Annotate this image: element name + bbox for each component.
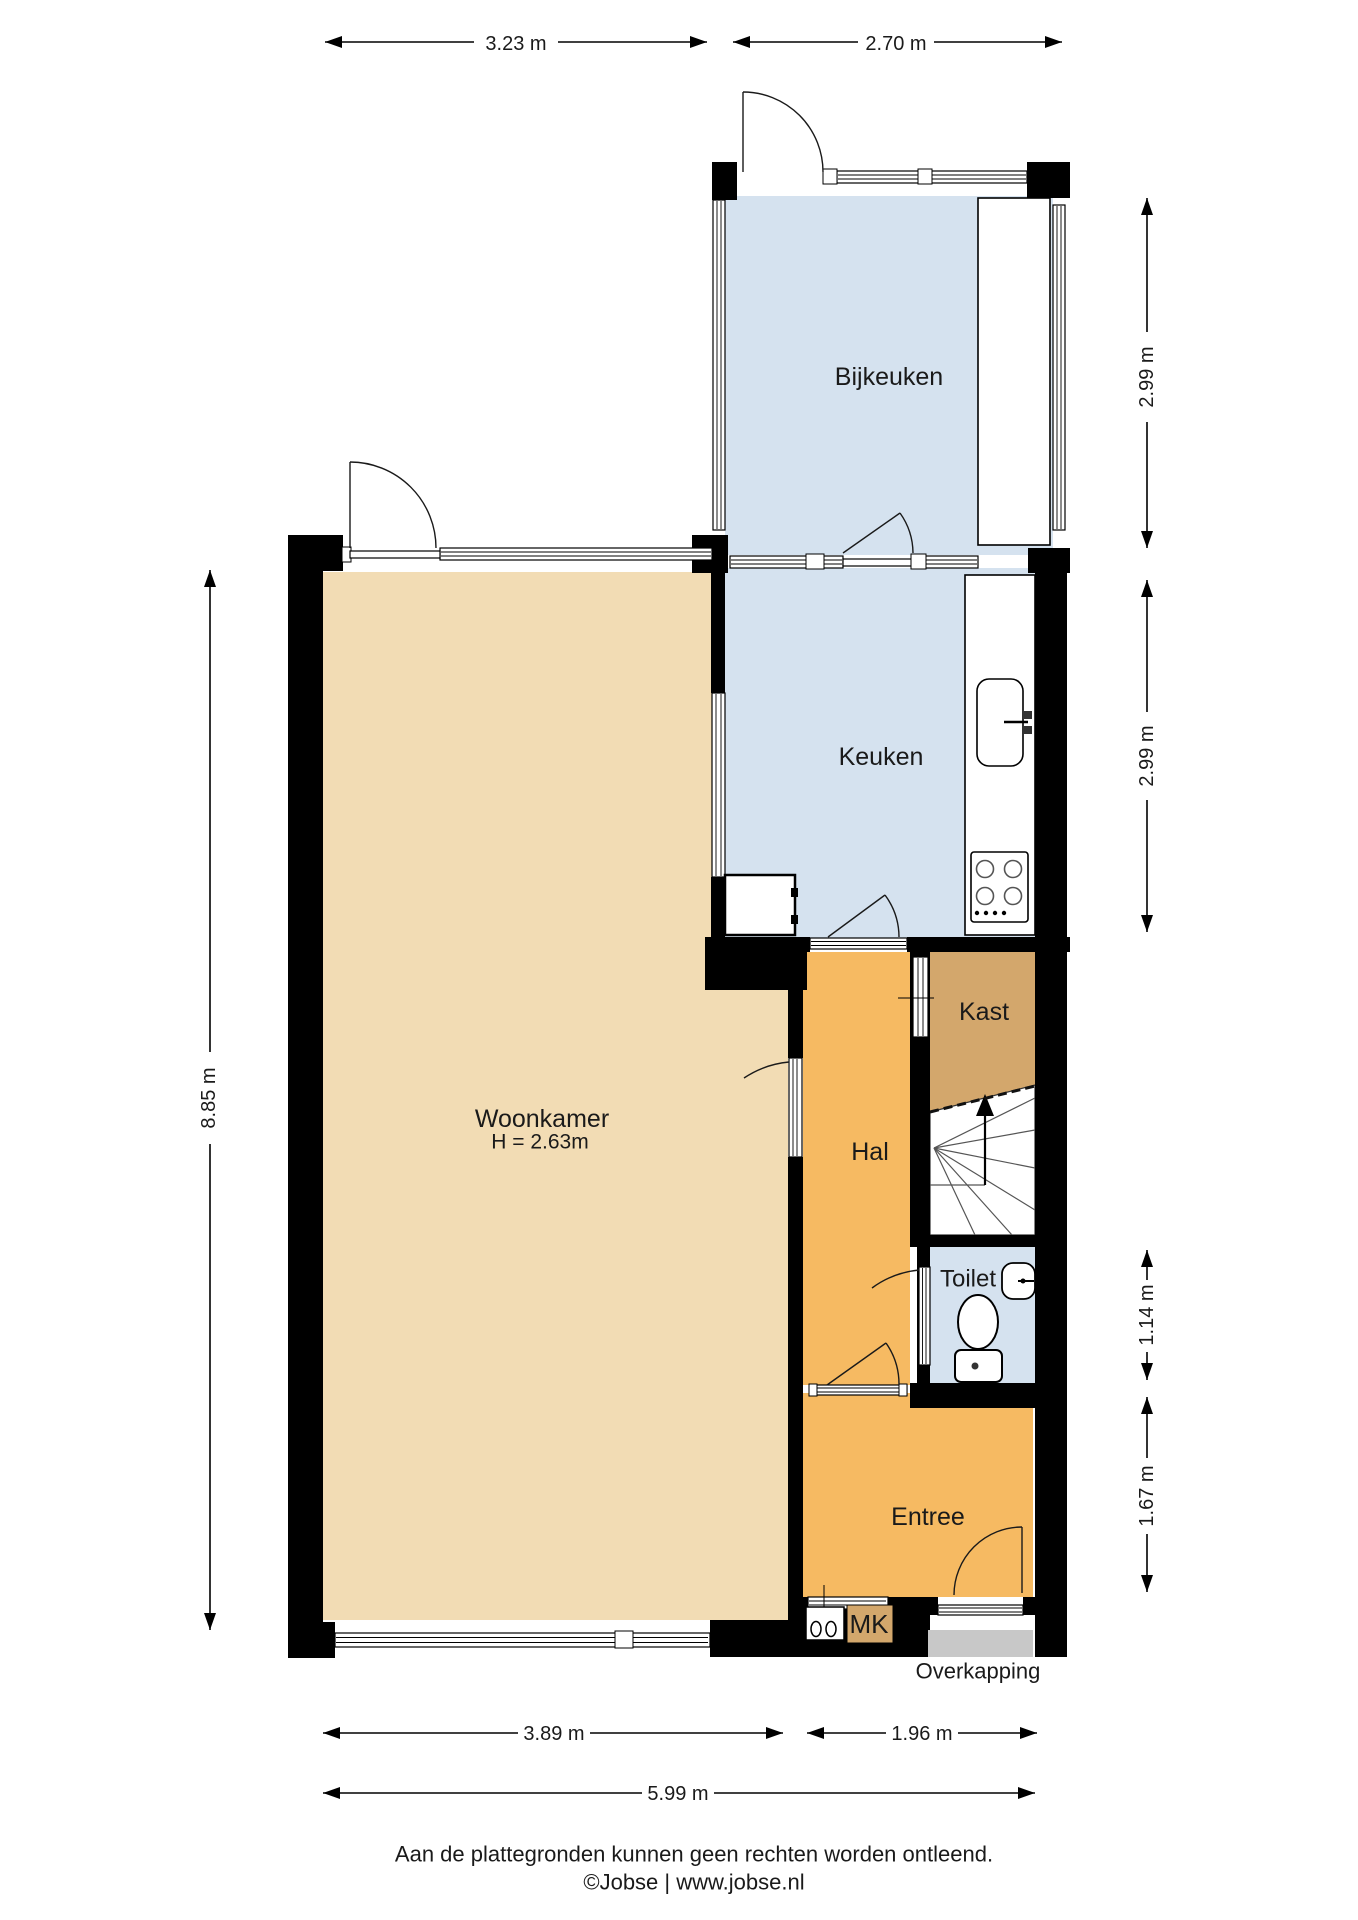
dim-bottom-woonkamer: 3.89 m bbox=[323, 1723, 783, 1745]
wall-bijkeuken-top-right bbox=[1027, 162, 1070, 198]
label-overkapping: Overkapping bbox=[916, 1659, 1041, 1684]
threshold-keuken-hal bbox=[810, 938, 907, 949]
label-entree: Entree bbox=[891, 1503, 965, 1531]
dim-label-right-bijkeuken: 2.99 m bbox=[1136, 346, 1158, 407]
door-bijkeuken-exterior bbox=[743, 92, 823, 172]
window-woonkamer-bottom bbox=[335, 1633, 710, 1647]
footer: Aan de plattegronden kunnen geen rechten… bbox=[395, 1842, 993, 1895]
toilet-bowl-icon bbox=[955, 1295, 1002, 1382]
room-kast bbox=[930, 952, 1035, 1112]
door-leaf-kast bbox=[913, 957, 928, 1037]
floorplan-canvas: 3.23 m 2.70 m 8.85 m 2.99 m 2.99 m 1.14 … bbox=[0, 0, 1358, 1920]
dim-right-entree: 1.67 m bbox=[1136, 1397, 1158, 1592]
room-entree bbox=[803, 1393, 1033, 1597]
label-bijkeuken: Bijkeuken bbox=[835, 363, 943, 391]
window-bijkeuken-keuken-left bbox=[730, 556, 843, 568]
dim-left-height: 8.85 m bbox=[198, 570, 220, 1630]
label-toilet: Toilet bbox=[940, 1266, 996, 1293]
room-hal bbox=[803, 952, 910, 1385]
window-bijkeuken-left bbox=[713, 200, 725, 530]
window-woonkamer-top bbox=[440, 548, 712, 560]
dim-top-right: 2.70 m bbox=[733, 33, 1062, 55]
label-woonkamer-height: H = 2.63m bbox=[491, 1131, 588, 1154]
dim-right-toilet: 1.14 m bbox=[1136, 1250, 1158, 1380]
stove-icon bbox=[971, 852, 1028, 922]
footer-disclaimer: Aan de plattegronden kunnen geen rechten… bbox=[395, 1842, 993, 1867]
wall-right-outer bbox=[1035, 573, 1067, 1657]
dim-bottom-hal: 1.96 m bbox=[807, 1723, 1037, 1745]
door-leaf-toilet bbox=[919, 1267, 930, 1365]
footer-credit: ©Jobse | www.jobse.nl bbox=[583, 1870, 804, 1895]
dim-right-keuken: 2.99 m bbox=[1136, 580, 1158, 932]
label-kast: Kast bbox=[959, 998, 1009, 1026]
dim-label-left-height: 8.85 m bbox=[198, 1067, 220, 1128]
dim-bottom-total: 5.99 m bbox=[323, 1783, 1035, 1805]
dim-label-bottom-hal: 1.96 m bbox=[891, 1723, 952, 1745]
dim-top-left: 3.23 m bbox=[325, 33, 707, 55]
door-woonkamer-exterior bbox=[350, 462, 436, 548]
dim-label-bottom-total: 5.99 m bbox=[647, 1783, 708, 1805]
wall-toilet-top bbox=[917, 1235, 1035, 1247]
dim-label-top-right: 2.70 m bbox=[865, 33, 926, 55]
staircase bbox=[930, 1085, 1035, 1235]
wall-woonkamer-hal-upper bbox=[788, 990, 803, 1058]
threshold-front-door bbox=[938, 1605, 1023, 1615]
label-woonkamer: Woonkamer bbox=[475, 1105, 609, 1133]
floorplan-page: 3.23 m 2.70 m 8.85 m 2.99 m 2.99 m 1.14 … bbox=[0, 0, 1358, 1920]
label-meterkast: MK bbox=[850, 1609, 890, 1639]
wall-left bbox=[288, 535, 323, 1658]
dim-label-right-entree: 1.67 m bbox=[1136, 1465, 1158, 1526]
keuken-cabinet bbox=[725, 875, 798, 935]
threshold-hal-entree bbox=[813, 1385, 907, 1395]
counter-bijkeuken bbox=[978, 198, 1050, 545]
kitchen-sink-icon bbox=[977, 679, 1032, 766]
window-bijkeuken-right bbox=[1053, 205, 1065, 530]
window-keuken-woonkamer bbox=[712, 693, 725, 877]
dim-label-right-toilet: 1.14 m bbox=[1136, 1284, 1158, 1345]
label-keuken: Keuken bbox=[839, 743, 924, 771]
dim-label-right-keuken: 2.99 m bbox=[1136, 725, 1158, 786]
dim-label-top-left: 3.23 m bbox=[485, 33, 546, 55]
overkapping-slab bbox=[928, 1630, 1033, 1657]
dim-label-bottom-woonkamer: 3.89 m bbox=[523, 1723, 584, 1745]
door-leaf-woonkamer-hal bbox=[789, 1058, 802, 1157]
wall-woonkamer-hal-lower bbox=[788, 1157, 803, 1620]
toilet-sink-icon bbox=[1002, 1263, 1035, 1299]
dim-right-bijkeuken: 2.99 m bbox=[1136, 198, 1158, 548]
label-hal: Hal bbox=[851, 1138, 889, 1166]
wall-bijkeuken-top-left bbox=[712, 162, 737, 200]
